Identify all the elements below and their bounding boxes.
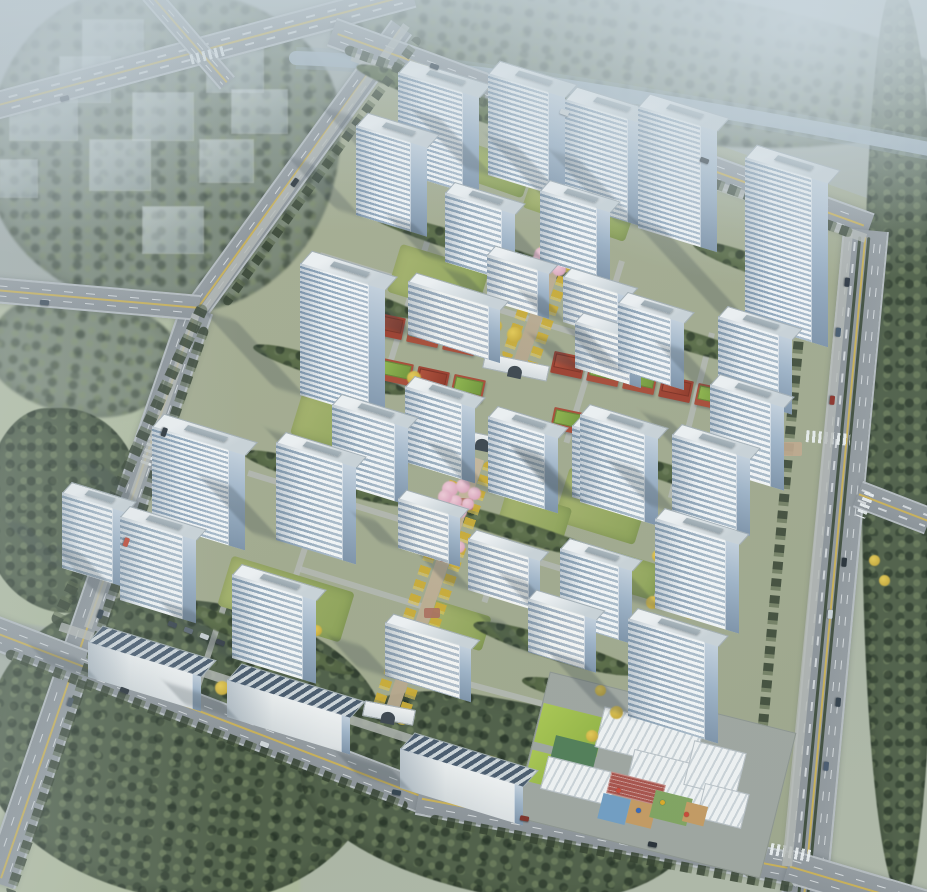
building-facade [356, 125, 410, 232]
building-glass-side [700, 125, 717, 252]
lowrise-apartment [398, 498, 448, 548]
building-glass-side [725, 539, 739, 633]
golden-tree [507, 327, 522, 342]
street-retail-building [88, 641, 192, 677]
residential-tower [300, 263, 368, 395]
building-glass-side [302, 595, 316, 683]
building-glass-side [704, 641, 718, 743]
play-equipment [616, 788, 621, 793]
midrise-apartment [618, 302, 670, 370]
residential-tower [745, 157, 811, 322]
building-glass-side [596, 207, 610, 281]
planned-building-massing [90, 140, 150, 190]
building-glass-side [341, 714, 350, 755]
planned-building-massing [200, 140, 253, 182]
residential-tower [152, 426, 228, 522]
lowrise-apartment [408, 281, 488, 335]
building-facade [276, 442, 342, 560]
building-glass-side [368, 284, 385, 421]
residential-tower [638, 106, 700, 228]
midrise-apartment [628, 618, 704, 716]
midrise-apartment [672, 434, 736, 512]
car [824, 762, 829, 771]
golden-tree [869, 555, 880, 566]
planned-building-massing [232, 90, 287, 133]
masterplan-aerial-rendering [0, 0, 927, 892]
planned-building-massing [0, 160, 37, 197]
golden-tree [879, 575, 890, 586]
car [836, 328, 841, 337]
car [40, 300, 49, 305]
building-glass-side [459, 645, 471, 703]
midrise-apartment [120, 516, 182, 600]
street-retail-building [227, 679, 341, 717]
red-paved-garden [424, 608, 440, 618]
midrise-apartment [540, 190, 596, 260]
lowrise-apartment [385, 622, 459, 676]
building-facade [300, 263, 368, 416]
car [828, 610, 833, 619]
building-glass-side [448, 513, 460, 567]
building-glass-side [811, 177, 828, 347]
car [842, 558, 847, 567]
residential-tower [356, 125, 410, 215]
planned-building-massing [143, 207, 203, 253]
building-glass-side [770, 402, 784, 490]
planned-building-massing [133, 93, 193, 140]
building-roof [745, 145, 841, 184]
midrise-apartment [655, 518, 725, 608]
golden-tree [586, 730, 598, 742]
building-glass-side [488, 305, 500, 363]
car [845, 278, 850, 287]
car [830, 396, 835, 405]
tree-grove [862, 0, 927, 892]
street-retail-building [400, 748, 514, 788]
midrise-apartment [276, 442, 342, 540]
midrise-apartment [232, 574, 302, 658]
lowrise-apartment [528, 598, 584, 652]
play-equipment [636, 808, 641, 813]
car [836, 698, 841, 707]
play-equipment [660, 800, 665, 805]
building-glass-side [736, 454, 750, 536]
play-equipment [684, 812, 689, 817]
